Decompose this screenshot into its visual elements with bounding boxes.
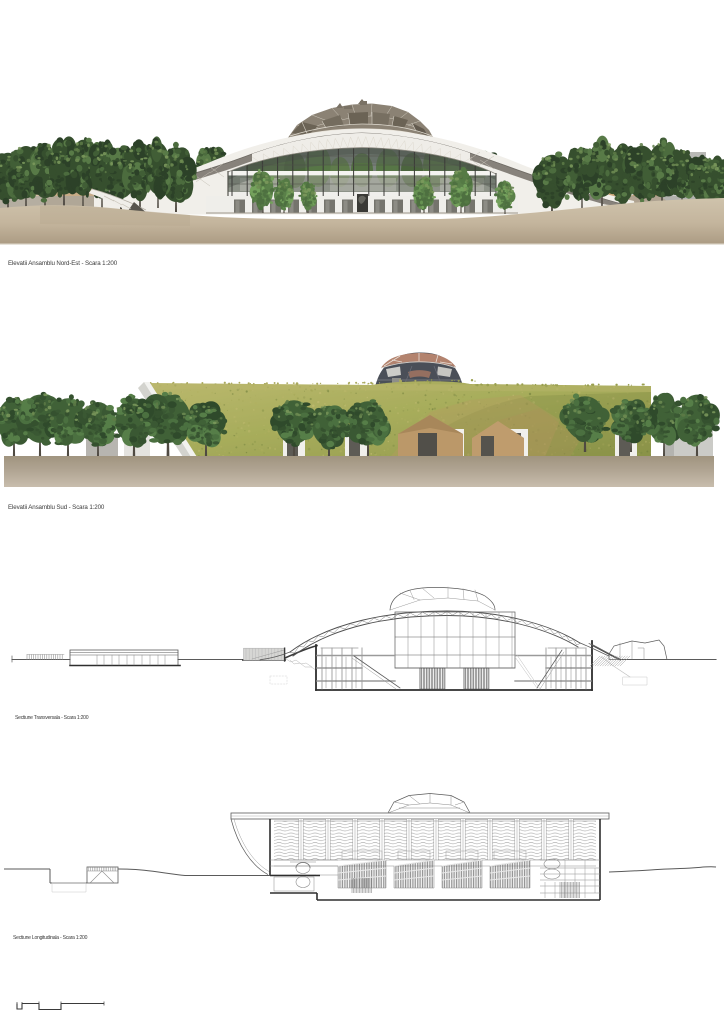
svg-text:Elevatii Ansamblu Nord-Est - S: Elevatii Ansamblu Nord-Est - Scara 1:200 xyxy=(8,260,118,267)
svg-text:Sectiune Longitudinala - Scara: Sectiune Longitudinala - Scara 1:200 xyxy=(13,935,88,941)
svg-text:Sectiune Transversala - Scara: Sectiune Transversala - Scara 1:200 xyxy=(15,715,89,721)
svg-text:Elevatii Ansamblu Sud - Scara: Elevatii Ansamblu Sud - Scara 1:200 xyxy=(8,504,105,511)
